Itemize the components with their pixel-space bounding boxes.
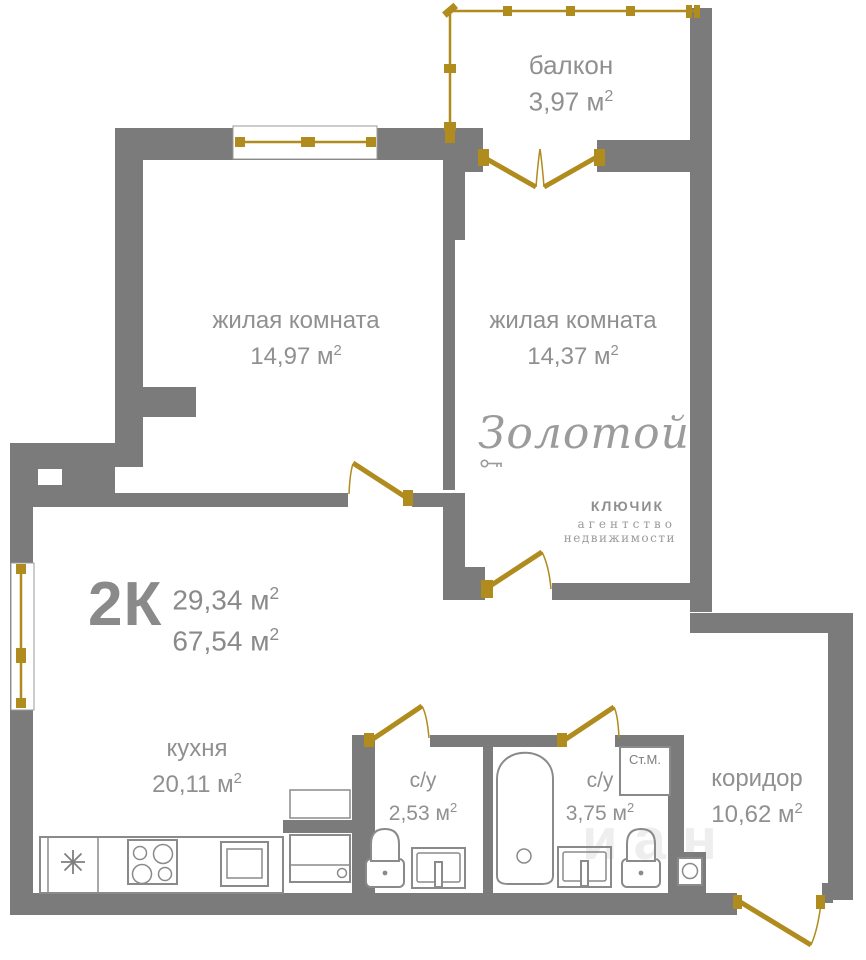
door-bath1 [364,706,429,747]
floor-plan: иан балкон 3,97 м2 жилая комната 14,97 м… [0,0,866,960]
room-label-kitchen: кухня 20,11 м2 [152,734,242,800]
door-bath2 [557,707,619,747]
window-kitchen [11,563,34,710]
key-icon [480,457,504,470]
toilet-icon-bath1 [366,829,404,887]
door-room2 [481,552,551,598]
room-label-bath1: с/у 2,53 м2 [389,767,457,827]
apartment-summary: 2К 29,34 м2 67,54 м2 [88,574,279,659]
door-room1 [349,463,413,506]
logo-line-agency: агентство [478,517,676,531]
room-label-bath2: с/у 3,75 м2 [566,767,634,827]
entrance-door [733,895,825,945]
bathtub-icon [497,753,553,884]
room-label-balcony: балкон 3,97 м2 [529,50,614,118]
washing-machine-label: Ст.М. [629,753,661,767]
balcony-french-door [478,149,605,187]
apartment-type: 2К [88,574,162,659]
room-label-corridor: коридор 10,62 м2 [711,764,803,830]
total-area: 67,54 м2 [172,617,279,658]
kitchen-sink-icon [221,842,268,886]
fridge-icon [61,850,85,874]
room-label-living1: жилая комната 14,97 м2 [212,306,379,372]
wall-notch [38,469,62,485]
vanity-sink-icon-bath1 [412,848,465,888]
living-area: 29,34 м2 [172,576,279,617]
kitchen-cabinet [290,790,350,882]
stove-icon [128,840,177,884]
logo-subtitle: КЛЮЧИК [478,498,664,514]
logo-title: Золотой [478,412,678,500]
logo-line-realty: недвижимости [478,531,676,545]
window-room1 [233,126,377,159]
room-label-living2: жилая комната 14,37 м2 [489,306,656,372]
agency-logo: Золотой КЛЮЧИК агентство недвижимости [478,412,678,545]
